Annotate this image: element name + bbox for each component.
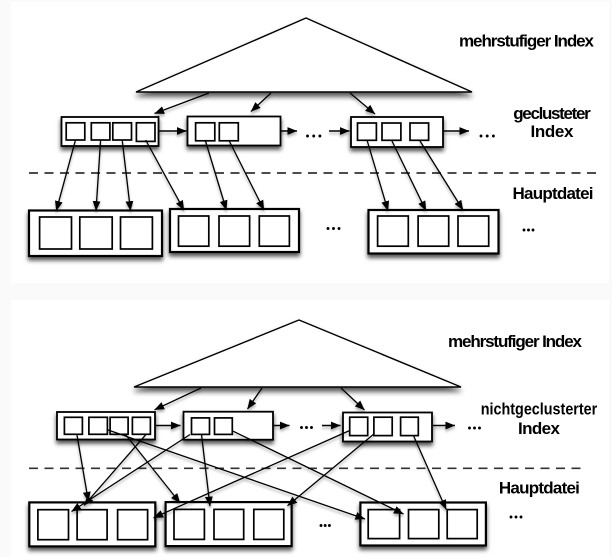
svg-text:Hauptdatei: Hauptdatei (513, 184, 594, 203)
svg-text:Index: Index (518, 419, 561, 438)
svg-text:geclusteter: geclusteter (513, 104, 591, 123)
svg-text:mehrstufiger Index: mehrstufiger Index (448, 332, 583, 351)
svg-text:Hauptdatei: Hauptdatei (499, 479, 580, 498)
svg-text:mehrstufiger Index: mehrstufiger Index (459, 32, 595, 51)
svg-text:nichtgeclusterter: nichtgeclusterter (481, 400, 598, 419)
svg-text:Index: Index (531, 122, 575, 141)
